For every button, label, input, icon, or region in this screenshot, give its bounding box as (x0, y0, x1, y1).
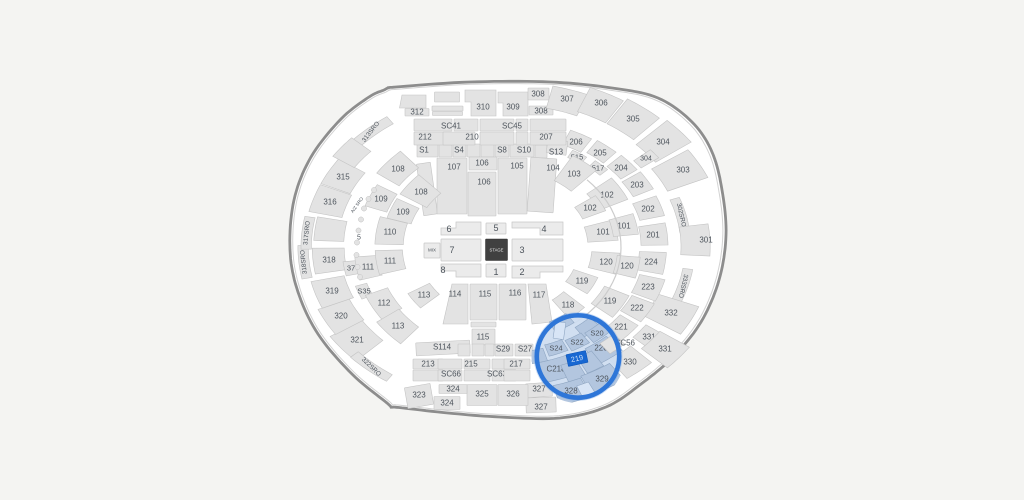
svg-text:S20: S20 (590, 329, 603, 338)
svg-text:S24: S24 (549, 344, 562, 353)
svg-text:204: 204 (614, 164, 628, 173)
svg-text:116: 116 (509, 289, 522, 298)
svg-text:207: 207 (539, 133, 553, 142)
svg-text:316: 316 (323, 198, 337, 207)
svg-text:S1: S1 (419, 146, 429, 155)
svg-text:203: 203 (630, 181, 644, 190)
svg-text:120: 120 (599, 258, 613, 267)
svg-text:107: 107 (447, 163, 461, 172)
svg-text:312: 312 (410, 108, 424, 117)
svg-text:223: 223 (641, 283, 655, 292)
svg-text:S4: S4 (454, 146, 464, 155)
svg-text:S114: S114 (433, 343, 452, 352)
svg-text:310: 310 (476, 103, 490, 112)
svg-text:114: 114 (449, 290, 462, 299)
svg-text:319: 319 (325, 287, 339, 296)
svg-text:37: 37 (347, 264, 355, 273)
svg-text:115: 115 (479, 290, 492, 299)
svg-text:329: 329 (595, 375, 609, 384)
svg-text:S10: S10 (517, 146, 532, 155)
svg-text:325: 325 (475, 390, 489, 399)
svg-text:321: 321 (350, 336, 364, 345)
svg-text:103: 103 (567, 170, 581, 179)
svg-text:106: 106 (477, 178, 491, 187)
svg-text:324: 324 (446, 385, 460, 394)
svg-text:202: 202 (641, 205, 655, 214)
svg-text:307: 307 (560, 95, 574, 104)
svg-text:224: 224 (644, 258, 658, 267)
svg-text:108: 108 (414, 188, 428, 197)
svg-text:S27: S27 (518, 345, 533, 354)
svg-text:8: 8 (440, 265, 445, 275)
svg-text:205: 205 (593, 149, 607, 158)
svg-text:213: 213 (421, 360, 435, 369)
svg-text:112: 112 (378, 299, 391, 308)
svg-text:109: 109 (396, 208, 410, 217)
svg-text:105: 105 (510, 162, 524, 171)
svg-text:308: 308 (531, 90, 545, 99)
svg-text:309: 309 (506, 103, 520, 112)
svg-text:304: 304 (640, 156, 652, 163)
svg-text:S22: S22 (570, 338, 583, 347)
svg-text:323: 323 (412, 391, 426, 400)
svg-text:SC66: SC66 (441, 370, 462, 379)
svg-text:327: 327 (534, 403, 548, 412)
svg-text:206: 206 (569, 138, 583, 147)
svg-text:3: 3 (519, 245, 524, 255)
svg-text:324: 324 (440, 399, 454, 408)
svg-text:315: 315 (336, 173, 350, 182)
svg-text:110: 110 (384, 228, 397, 237)
svg-text:111: 111 (362, 263, 375, 272)
svg-text:304: 304 (656, 138, 670, 147)
svg-text:120: 120 (620, 262, 634, 271)
svg-text:210: 210 (465, 133, 479, 142)
svg-text:S13: S13 (549, 148, 564, 157)
svg-text:111: 111 (384, 257, 397, 266)
svg-text:109: 109 (374, 195, 388, 204)
svg-text:119: 119 (604, 297, 617, 306)
svg-text:113: 113 (418, 291, 431, 300)
svg-text:330: 330 (623, 358, 637, 367)
svg-text:222: 222 (630, 304, 644, 313)
svg-text:SC41: SC41 (441, 122, 462, 131)
svg-text:SC45: SC45 (502, 122, 523, 131)
svg-text:221: 221 (614, 323, 628, 332)
svg-text:5: 5 (357, 235, 361, 242)
svg-text:113: 113 (392, 322, 405, 331)
svg-text:106: 106 (475, 159, 489, 168)
svg-text:217: 217 (509, 360, 523, 369)
svg-text:STAGE: STAGE (490, 248, 504, 253)
svg-text:201: 201 (646, 231, 660, 240)
svg-text:S8: S8 (497, 146, 507, 155)
svg-text:7: 7 (449, 245, 454, 255)
svg-text:118: 118 (562, 301, 575, 310)
svg-text:S29: S29 (496, 345, 511, 354)
svg-text:102: 102 (583, 204, 597, 213)
svg-text:1: 1 (493, 267, 498, 277)
svg-text:326: 326 (506, 390, 520, 399)
svg-text:301: 301 (699, 236, 713, 245)
svg-text:117: 117 (533, 291, 546, 300)
svg-text:331: 331 (658, 345, 672, 354)
svg-text:305: 305 (626, 115, 640, 124)
svg-text:332: 332 (664, 309, 678, 318)
svg-text:2: 2 (519, 267, 524, 277)
svg-text:119: 119 (576, 277, 589, 286)
svg-text:115: 115 (477, 333, 490, 342)
svg-text:108: 108 (391, 165, 405, 174)
svg-text:4: 4 (541, 224, 546, 234)
svg-text:5: 5 (493, 223, 498, 233)
svg-text:212: 212 (418, 133, 432, 142)
svg-text:104: 104 (546, 164, 560, 173)
svg-text:318: 318 (322, 256, 336, 265)
svg-text:303: 303 (676, 166, 690, 175)
svg-text:327: 327 (532, 385, 546, 394)
svg-text:MIX: MIX (428, 248, 436, 253)
svg-text:320: 320 (334, 312, 348, 321)
svg-text:215: 215 (464, 360, 478, 369)
svg-text:306: 306 (594, 99, 608, 108)
svg-text:101: 101 (596, 228, 610, 237)
svg-text:6: 6 (446, 224, 451, 234)
